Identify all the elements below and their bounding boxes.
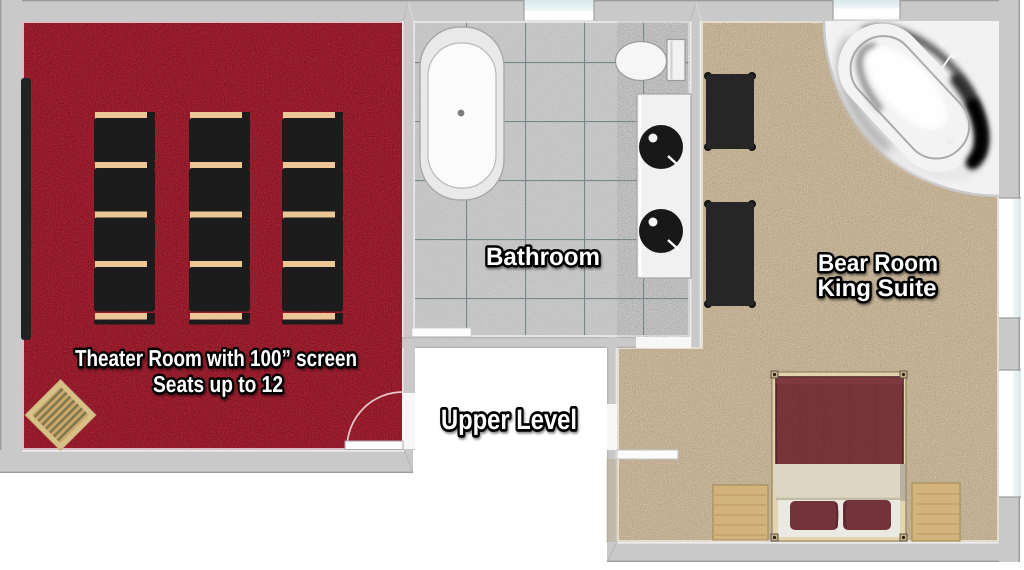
svg-text:Seats up to 12: Seats up to 12 [153,371,283,397]
svg-text:Upper Level: Upper Level [441,404,577,435]
svg-text:Bear Room: Bear Room [818,250,938,277]
svg-text:Bathroom: Bathroom [486,243,600,271]
svg-text:Theater Room with 100” screen: Theater Room with 100” screen [75,345,357,371]
svg-text:King Suite: King Suite [818,275,937,302]
